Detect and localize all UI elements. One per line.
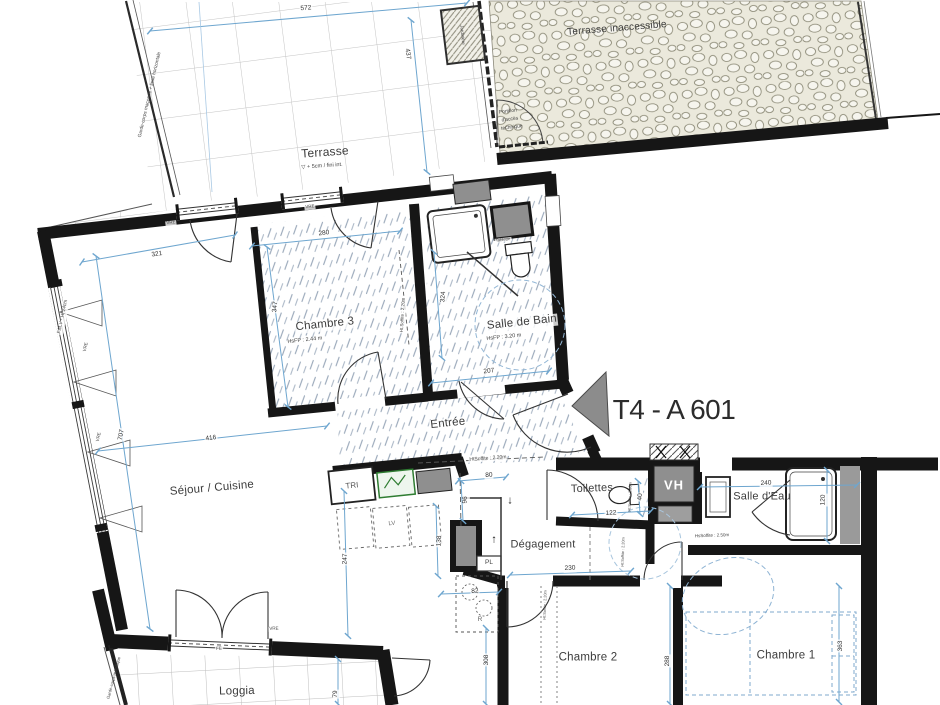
chambre1-label: Chambre 1 <box>756 650 817 662</box>
dim-82: 82 <box>470 589 480 596</box>
dim-40: 40 <box>638 492 645 502</box>
dim-120: 120 <box>821 493 828 506</box>
dim-80: 80 <box>484 473 494 480</box>
tech-door-gap <box>429 175 454 192</box>
vh-label: VH <box>663 479 685 492</box>
electric-panel <box>377 469 415 498</box>
dim-230: 230 <box>563 566 576 573</box>
dim-240: 240 <box>759 481 772 488</box>
dim-572: 572 <box>299 5 312 13</box>
dim-324: 324 <box>440 290 448 303</box>
dim-247: 247 <box>343 552 350 565</box>
dim-288: 288 <box>665 655 672 668</box>
tri-label: TRI <box>344 481 360 491</box>
terrasse-label: Terrasse <box>300 144 350 159</box>
loggia-label: Loggia <box>218 686 256 698</box>
dim-96: 96 <box>463 495 470 505</box>
dim-138: 138 <box>436 534 443 547</box>
dim-437: 437 <box>403 47 411 61</box>
sde-gray-strip <box>840 466 860 544</box>
dim-347: 347 <box>272 300 280 313</box>
sdb-terrace-gap <box>545 196 561 227</box>
toilettes-label: Toilettes <box>570 483 615 496</box>
chambre1-door-gap <box>640 574 681 588</box>
degagement-label: Dégagement <box>510 540 577 551</box>
sde-shower <box>786 468 836 540</box>
gray-box-kitchen <box>416 468 452 493</box>
fridge-dashed-box <box>456 576 498 632</box>
sejour-window-band <box>50 279 108 533</box>
r-label: R <box>477 617 484 624</box>
arrow-up: ↑ <box>490 535 498 546</box>
chambre2-label: Chambre 2 <box>558 652 619 664</box>
unit-label: T4 - A 601 <box>612 396 737 424</box>
pl-label: PL <box>484 560 494 567</box>
dim-308: 308 <box>484 654 491 667</box>
arrow-down: ↓ <box>506 496 514 507</box>
vre-label-3: VRE <box>268 627 279 632</box>
shaft-fill <box>456 526 476 566</box>
dim-122: 122 <box>604 510 617 517</box>
dim-79: 79 <box>333 689 340 698</box>
sdb-shaft <box>491 203 533 239</box>
sde-door-gap <box>700 456 732 472</box>
dim-207: 207 <box>482 368 495 376</box>
fe-label: FE <box>215 647 223 652</box>
sde-door-leaf-frame <box>706 477 730 517</box>
chambre2-door-gap <box>505 574 553 588</box>
gray-block-top <box>453 180 491 204</box>
jardiniere-label: Jardinière <box>459 24 466 46</box>
dim-363: 363 <box>838 640 845 653</box>
floorplan-page: Terrasse ▽ + 5cm / fini int. Garde-corps… <box>0 0 940 705</box>
floorplan-drawing <box>0 0 940 705</box>
lv-label: LV <box>387 521 396 528</box>
salle-eau-label: Salle d'Eau <box>732 492 792 503</box>
sdb-shower <box>427 205 491 264</box>
